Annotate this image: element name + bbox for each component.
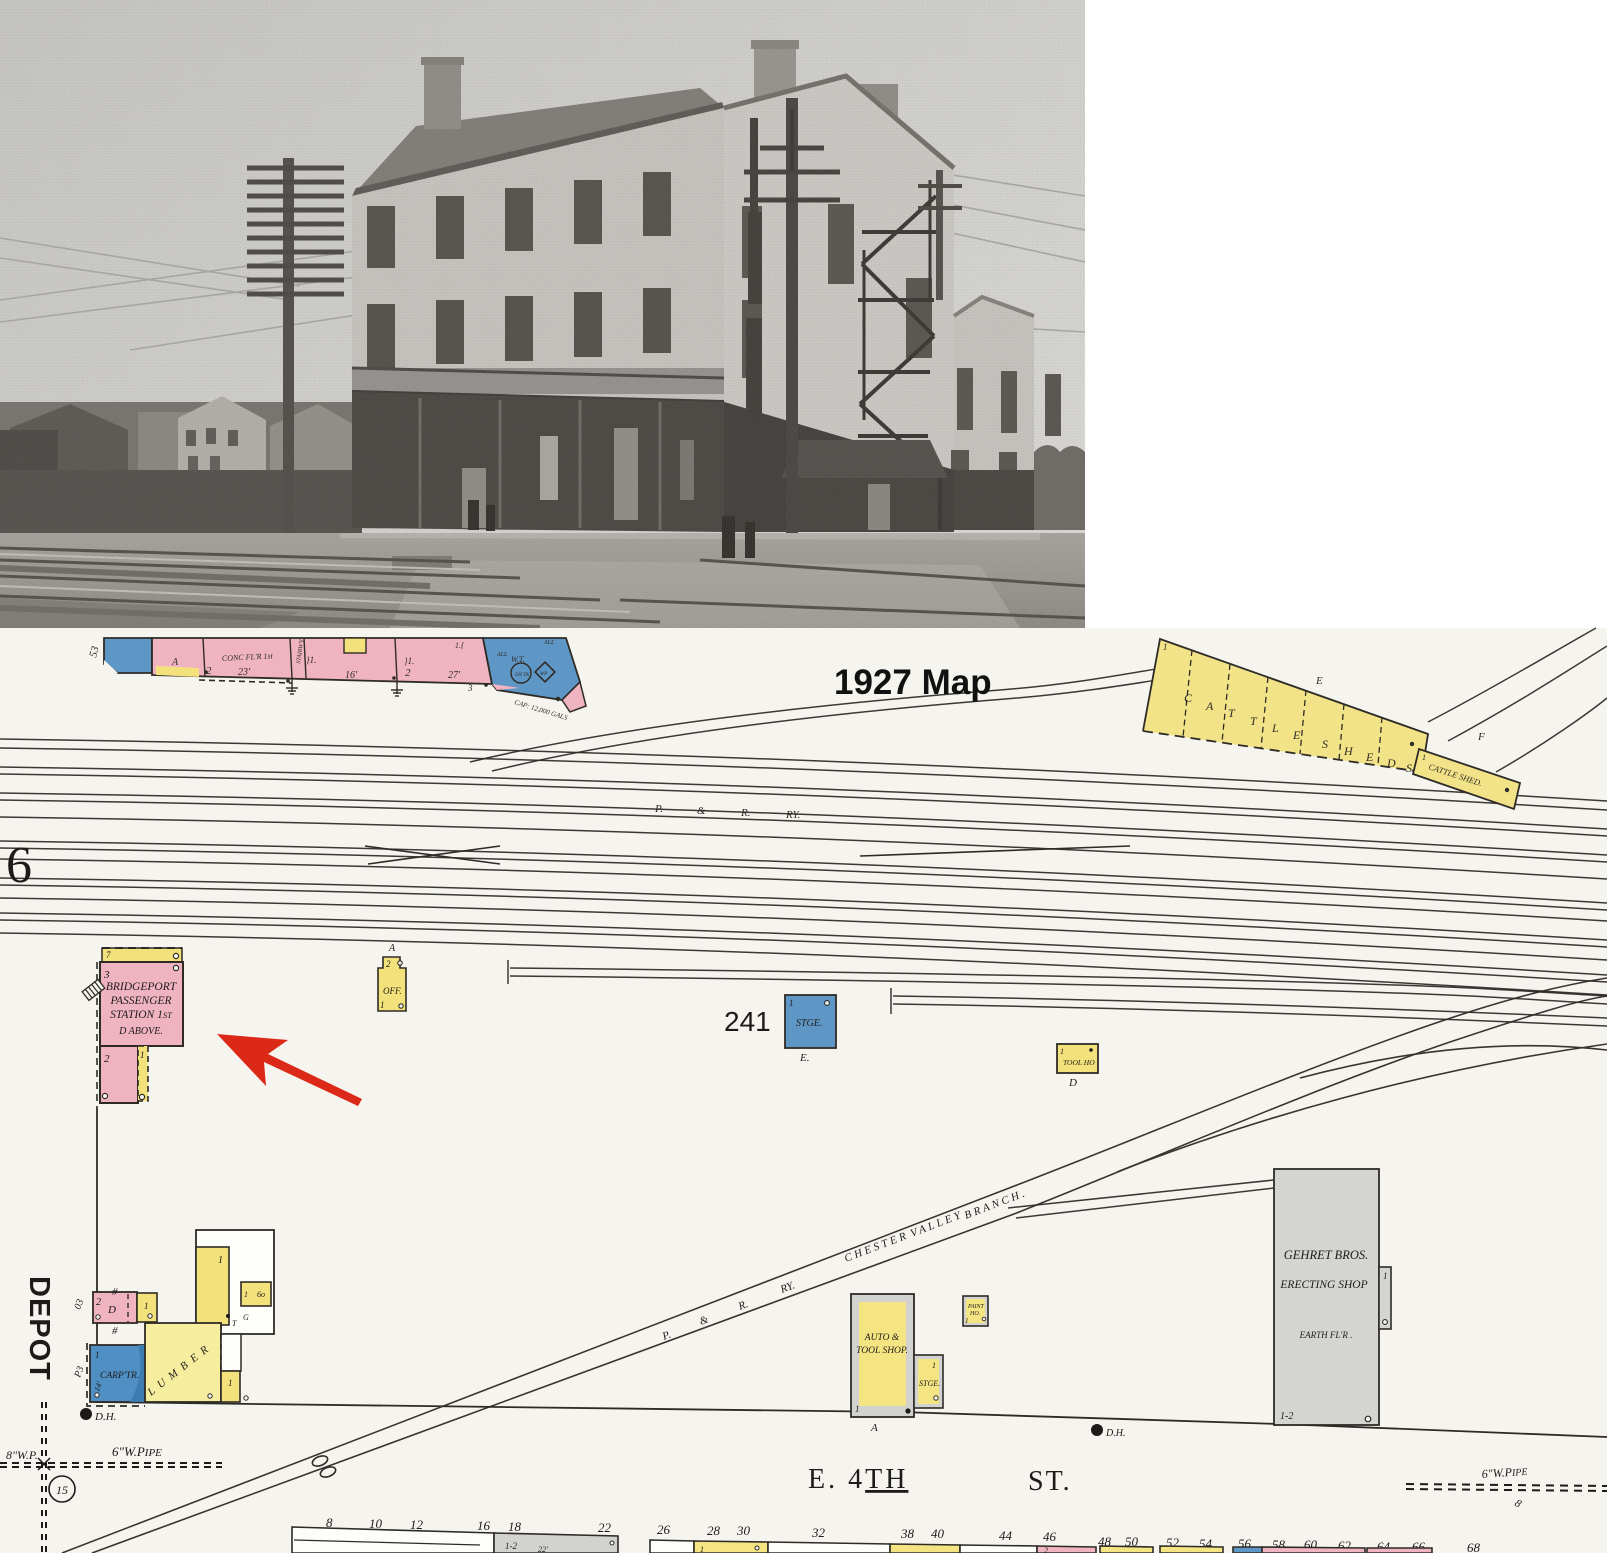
svg-text:1: 1 <box>1060 1047 1064 1056</box>
svg-text:D: D <box>1068 1077 1077 1089</box>
svg-text:BRIDGEPORT: BRIDGEPORT <box>106 981 178 993</box>
svg-text:7: 7 <box>106 950 111 960</box>
svg-text:E: E <box>1315 675 1323 687</box>
svg-text:1: 1 <box>244 1290 248 1299</box>
svg-text:28: 28 <box>707 1523 721 1538</box>
svg-text:16': 16' <box>345 670 358 681</box>
svg-text:L: L <box>1271 721 1279 735</box>
svg-text:1927 Map: 1927 Map <box>834 663 992 702</box>
svg-text:RY.: RY. <box>785 809 801 821</box>
svg-text:PAINT: PAINT <box>967 1304 985 1310</box>
svg-text:32: 32 <box>811 1525 826 1540</box>
svg-text:1: 1 <box>700 1545 704 1553</box>
svg-text:A: A <box>870 1422 878 1434</box>
svg-text:6o: 6o <box>257 1290 265 1299</box>
svg-text:STGE.: STGE. <box>796 1018 822 1029</box>
svg-text:ST.: ST. <box>1028 1466 1072 1497</box>
svg-text:E. 4TH: E. 4TH <box>808 1464 908 1495</box>
svg-text:D ABOVE.: D ABOVE. <box>118 1026 163 1037</box>
svg-text:1: 1 <box>932 1361 936 1370</box>
svg-text:D.H.: D.H. <box>94 1411 116 1423</box>
svg-text:2: 2 <box>386 959 391 969</box>
svg-text:241: 241 <box>724 1006 771 1037</box>
svg-text:H: H <box>1343 744 1354 758</box>
svg-text:6"W.PIPE: 6"W.PIPE <box>112 1444 162 1459</box>
svg-text:E: E <box>1365 750 1374 764</box>
svg-text:16: 16 <box>477 1518 491 1533</box>
svg-text:R.: R. <box>740 807 750 819</box>
svg-text:1.{: 1.{ <box>455 641 465 650</box>
svg-text:ALL: ALL <box>496 652 508 658</box>
svg-text:#: # <box>112 1325 118 1337</box>
svg-text:1: 1 <box>965 1317 969 1325</box>
svg-text:EARTH FL'R .: EARTH FL'R . <box>1299 1330 1353 1340</box>
svg-text:}1.: }1. <box>404 656 414 666</box>
svg-text:23': 23' <box>238 667 251 678</box>
svg-text:8"W.P.: 8"W.P. <box>6 1448 38 1462</box>
svg-text:#: # <box>112 1286 118 1298</box>
svg-text:26: 26 <box>657 1522 671 1537</box>
svg-text:1: 1 <box>1383 1271 1388 1281</box>
svg-text:1: 1 <box>1163 642 1168 652</box>
svg-text:46: 46 <box>1043 1529 1057 1544</box>
svg-text:30: 30 <box>736 1523 751 1538</box>
svg-text:CARP'TR.: CARP'TR. <box>100 1371 139 1381</box>
svg-text:1: 1 <box>144 1301 149 1311</box>
svg-text:38: 38 <box>900 1526 915 1541</box>
svg-text:3: 3 <box>467 683 473 693</box>
svg-text:12: 12 <box>410 1517 424 1532</box>
svg-text:15: 15 <box>56 1483 68 1497</box>
svg-text:PASSENGER: PASSENGER <box>109 995 171 1007</box>
svg-text:A: A <box>388 943 396 954</box>
svg-text:1: 1 <box>855 1404 860 1414</box>
svg-text:2: 2 <box>104 1053 110 1065</box>
svg-text:1: 1 <box>789 998 794 1008</box>
svg-text:WP: WP <box>540 672 547 677</box>
svg-text:ALL: ALL <box>543 640 555 646</box>
svg-text:TOOL SHOP.: TOOL SHOP. <box>856 1346 908 1356</box>
svg-text:OFF.: OFF. <box>383 986 402 996</box>
svg-text:3: 3 <box>103 969 110 981</box>
svg-text:AUTO &: AUTO & <box>864 1333 900 1343</box>
svg-text:68: 68 <box>1467 1540 1481 1553</box>
svg-text:1: 1 <box>228 1378 233 1388</box>
svg-text:E: E <box>1292 728 1301 742</box>
svg-text:HO.: HO. <box>969 1311 980 1317</box>
svg-text:A: A <box>171 657 179 668</box>
svg-text:STGE.: STGE. <box>919 1379 940 1388</box>
svg-text:STATION 1ST: STATION 1ST <box>110 1009 173 1021</box>
svg-text:1: 1 <box>95 1350 100 1360</box>
svg-text:W.T.: W.T. <box>511 655 525 664</box>
svg-text:A: A <box>1205 699 1214 713</box>
svg-text:1: 1 <box>1422 753 1426 762</box>
svg-text:44: 44 <box>999 1528 1013 1543</box>
svg-text:6: 6 <box>6 837 32 894</box>
svg-text:1-2: 1-2 <box>505 1541 517 1551</box>
svg-text:TOOL HO: TOOL HO <box>1063 1058 1095 1067</box>
svg-text:F: F <box>1477 731 1485 743</box>
svg-text:P.: P. <box>654 803 663 815</box>
svg-text:G: G <box>243 1313 249 1322</box>
svg-text:2: 2 <box>405 667 411 679</box>
svg-text:&: & <box>697 805 706 817</box>
svg-text:2: 2 <box>1044 1546 1048 1553</box>
svg-text:S: S <box>1322 737 1328 751</box>
svg-text:D.H.: D.H. <box>1105 1428 1125 1439</box>
svg-text:T: T <box>232 1319 237 1328</box>
svg-text:1-2: 1-2 <box>1280 1411 1293 1422</box>
svg-text:}1.: }1. <box>306 655 316 665</box>
svg-text:D: D <box>107 1304 116 1316</box>
svg-text:E.: E. <box>799 1052 809 1064</box>
svg-text:C: C <box>1184 691 1193 705</box>
svg-text:ON TK: ON TK <box>515 673 530 678</box>
svg-text:2: 2 <box>96 1297 101 1308</box>
svg-text:22: 22 <box>598 1520 612 1535</box>
svg-text:ERECTING SHOP: ERECTING SHOP <box>1279 1279 1367 1291</box>
svg-text:DEPOT: DEPOT <box>23 1276 55 1381</box>
svg-text:1: 1 <box>380 1000 385 1010</box>
svg-text:22': 22' <box>538 1545 548 1553</box>
svg-text:D: D <box>1386 756 1396 770</box>
svg-text:1: 1 <box>218 1255 223 1266</box>
svg-text:27': 27' <box>448 670 461 681</box>
svg-text:1: 1 <box>140 1050 145 1060</box>
svg-text:40: 40 <box>931 1526 945 1541</box>
svg-text:18: 18 <box>508 1519 522 1534</box>
svg-text:GEHRET BROS.: GEHRET BROS. <box>1284 1248 1369 1262</box>
